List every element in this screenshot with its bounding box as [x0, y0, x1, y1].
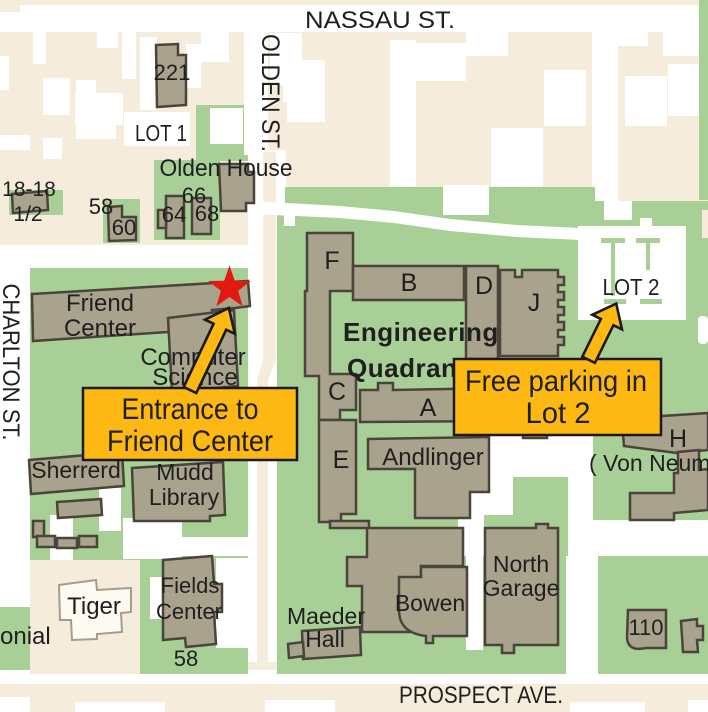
svg-text:( Von Neum: ( Von Neum	[589, 450, 708, 476]
svg-text:D: D	[475, 272, 493, 300]
svg-text:PROSPECT AVE.: PROSPECT AVE.	[399, 682, 563, 709]
svg-text:E: E	[333, 446, 350, 474]
svg-text:Garage: Garage	[483, 575, 560, 601]
svg-text:CHARLTON ST.: CHARLTON ST.	[0, 284, 24, 441]
svg-text:Engineering: Engineering	[343, 317, 499, 347]
svg-text:F: F	[324, 247, 339, 275]
svg-text:Tiger: Tiger	[67, 593, 121, 620]
svg-text:221: 221	[154, 60, 191, 85]
svg-text:J: J	[528, 289, 541, 317]
svg-text:64: 64	[162, 202, 186, 227]
svg-text:C: C	[328, 378, 346, 406]
svg-text:58: 58	[89, 194, 113, 219]
svg-text:LOT 2: LOT 2	[603, 274, 660, 300]
svg-text:Friend: Friend	[66, 290, 134, 317]
svg-text:110: 110	[628, 615, 663, 640]
svg-text:68: 68	[195, 201, 219, 226]
svg-text:onial: onial	[0, 623, 51, 650]
svg-text:Free parking in: Free parking in	[465, 365, 647, 398]
svg-text:H: H	[669, 425, 687, 453]
svg-text:18-18: 18-18	[2, 178, 56, 201]
svg-text:Bowen: Bowen	[395, 590, 465, 616]
svg-text:Lot 2: Lot 2	[526, 397, 591, 430]
svg-text:Fields: Fields	[161, 573, 220, 598]
svg-text:Center: Center	[64, 315, 136, 342]
svg-text:A: A	[420, 394, 437, 422]
svg-text:60: 60	[112, 215, 136, 240]
svg-text:Entrance to: Entrance to	[122, 393, 259, 426]
svg-text:B: B	[401, 269, 418, 297]
svg-text:Mudd: Mudd	[156, 459, 214, 485]
svg-text:NASSAU ST.: NASSAU ST.	[305, 7, 455, 34]
svg-text:Library: Library	[149, 484, 220, 510]
svg-text:LOT 1: LOT 1	[135, 120, 187, 146]
svg-text:Friend Center: Friend Center	[107, 425, 273, 458]
svg-text:Andlinger: Andlinger	[382, 444, 483, 471]
svg-text:58: 58	[174, 646, 198, 671]
svg-text:Center: Center	[156, 599, 222, 624]
svg-text:1/2: 1/2	[13, 203, 42, 226]
svg-text:Hall: Hall	[305, 626, 345, 652]
svg-text:North: North	[493, 551, 549, 577]
svg-text:Olden House: Olden House	[160, 155, 293, 182]
svg-text:OLDEN ST.: OLDEN ST.	[256, 34, 284, 152]
